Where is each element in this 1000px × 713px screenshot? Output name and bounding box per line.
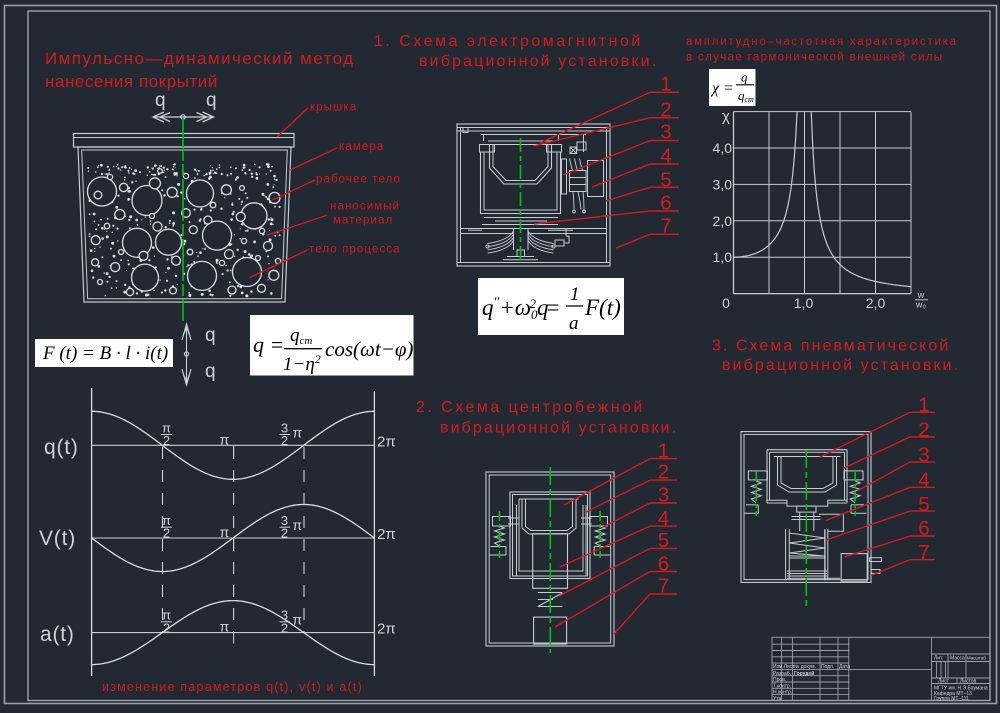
svg-text:изменение параметров q(t),: изменение параметров q(t), v(t) и a(t) [102,680,363,694]
svg-text:нанесения покрытий: нанесения покрытий [45,72,218,91]
svg-text:1,0: 1,0 [713,249,733,265]
svg-text:cos(ωt−φ): cos(ωt−φ) [325,337,413,361]
svg-text:2: 2 [163,433,170,448]
svg-text:q(t): q(t) [44,436,79,459]
svg-text:Горудей: Горудей [794,670,814,677]
svg-text:3,0: 3,0 [713,176,733,192]
svg-text:7: 7 [918,541,929,564]
svg-text:Лист: Лист [938,679,950,685]
svg-text:χ: χ [722,108,730,125]
svg-text:q: q [741,70,748,85]
svg-text:5: 5 [660,169,671,192]
svg-text:крышка: крышка [310,102,357,114]
svg-text:a(t): a(t) [40,623,75,646]
svg-text:0: 0 [722,295,730,311]
svg-text:2π: 2π [377,621,396,638]
svg-text:4: 4 [918,469,929,492]
svg-text:Изм.Лист: Изм.Лист [773,664,795,670]
svg-text:χ =: χ = [710,80,734,97]
svg-text:π: π [293,517,303,533]
svg-text:2. Схема центробежной: 2. Схема центробежной [416,399,645,416]
svg-text:V(t): V(t) [39,527,76,550]
svg-text:вибрационной установки.: вибрационной установки. [440,420,678,437]
svg-text:4,0: 4,0 [713,140,733,156]
svg-text:w₀: w₀ [915,300,926,310]
svg-text:2: 2 [163,526,170,541]
svg-text:F(t): F(t) [584,295,621,320]
svg-text:2π: 2π [377,433,396,450]
svg-text:q =: q = [253,332,284,357]
svg-text:материал: материал [333,215,393,227]
svg-text:1: 1 [570,284,580,305]
svg-text:q′′+ω02q: q′′+ω02q [482,294,548,322]
svg-text:3. Схема пневматической: 3. Схема пневматической [712,338,950,355]
svg-text:Масса: Масса [950,656,965,662]
svg-text:Н.контр.: Н.контр. [773,690,792,696]
svg-text:рабочее тело: рабочее тело [316,174,401,186]
svg-text:q: q [155,90,166,111]
svg-text:Лит.: Лит. [934,656,943,662]
svg-text:Импульсно—динамический метод: Импульсно—динамический метод [45,49,355,68]
svg-text:2: 2 [281,433,288,448]
svg-text:2,0: 2,0 [713,213,733,229]
svg-text:a: a [569,313,579,334]
svg-text:3: 3 [918,444,929,467]
svg-text:=: = [545,295,561,320]
svg-text:камера: камера [339,141,384,153]
svg-text:Дата: Дата [839,664,850,670]
svg-text:тело процесса: тело процесса [309,244,401,256]
svg-text:Т.контр.: Т.контр. [773,683,791,689]
svg-text:2,0: 2,0 [866,295,886,311]
svg-text:π: π [220,619,230,635]
svg-text:π: π [220,431,230,447]
svg-text:№ докум.: № докум. [794,664,816,670]
svg-text:1. Схема электромагнитной: 1. Схема электромагнитной [374,33,643,50]
svg-text:вибрационной установки.: вибрационной установки. [722,357,960,374]
svg-text:наносимый: наносимый [330,201,400,213]
svg-text:q: q [205,325,216,346]
svg-text:π: π [293,612,303,628]
svg-text:Пров.: Пров. [773,677,786,683]
svg-text:Утв.: Утв. [773,696,783,702]
svg-text:Подп.: Подп. [821,664,834,670]
svg-text:2: 2 [281,526,288,541]
svg-text:q: q [206,90,217,111]
svg-text:q: q [205,361,216,382]
svg-text:π: π [293,424,303,440]
svg-text:F (t) = B · l · i(t): F (t) = B · l · i(t) [42,343,168,364]
svg-text:2π: 2π [377,526,396,543]
svg-text:Группа МТ–111: Группа МТ–111 [934,696,969,702]
svg-text:амплитудно–частотная характер: амплитудно–частотная характеристика [686,36,958,48]
svg-text:в случае гармонической внеш: в случае гармонической внешней силы [686,52,943,64]
svg-text:w: w [917,290,925,300]
svg-text:2: 2 [918,419,929,442]
svg-text:Масштаб: Масштаб [967,656,986,661]
svg-text:1: 1 [918,394,929,417]
svg-text:вибрационной установки.: вибрационной установки. [419,53,658,70]
svg-text:Разраб.: Разраб. [773,671,791,677]
svg-text:Листов: Листов [960,679,977,685]
svg-text:2: 2 [281,620,288,635]
svg-text:π: π [220,524,230,540]
svg-text:1,0: 1,0 [794,295,814,311]
svg-text:5: 5 [918,493,929,516]
svg-text:2: 2 [163,620,170,635]
